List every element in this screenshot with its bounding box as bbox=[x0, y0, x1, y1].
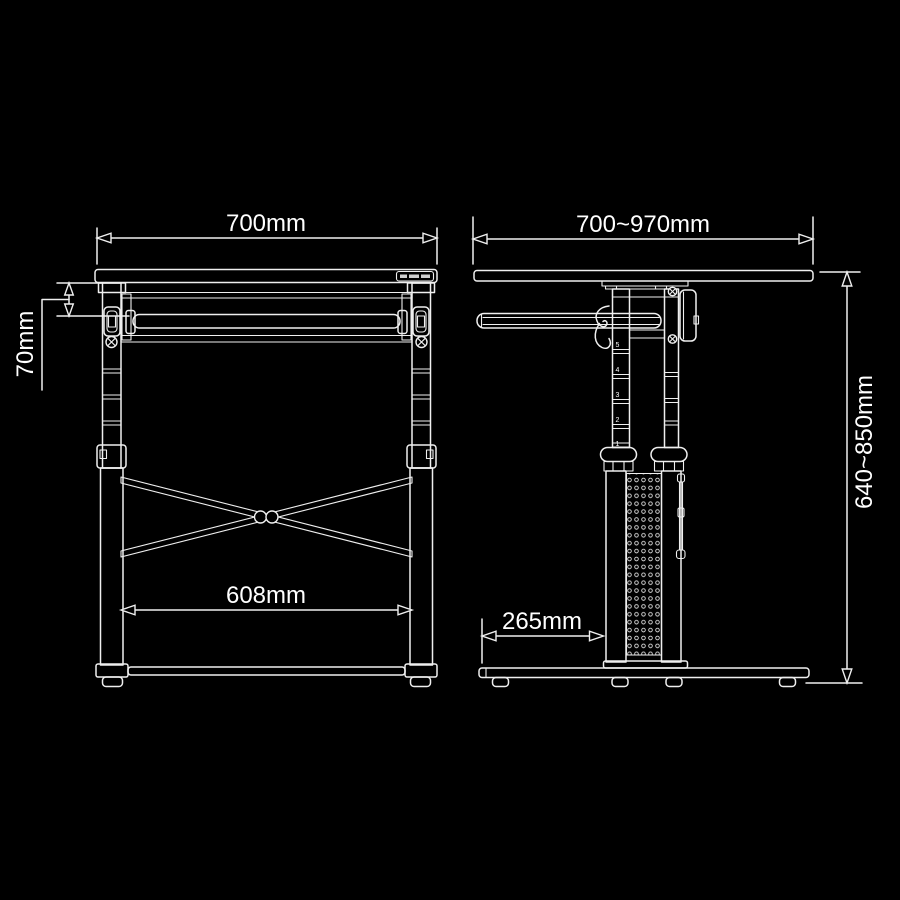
side-front-lower-tube bbox=[606, 471, 626, 662]
side-clamp-bracket bbox=[680, 290, 699, 341]
front-left-glide bbox=[103, 677, 123, 687]
scale-number: 4 bbox=[616, 367, 620, 374]
side-dim-base-depth: 265mm bbox=[482, 608, 604, 663]
side-foot-bar bbox=[479, 668, 809, 678]
arrow-left-icon bbox=[473, 234, 487, 244]
side-front-collar bbox=[601, 448, 637, 472]
screw-icon bbox=[106, 337, 117, 348]
side-rear-collar bbox=[651, 448, 687, 472]
front-tray-rod bbox=[126, 311, 407, 334]
front-dim-width: 700mm bbox=[97, 210, 437, 264]
scale-number: 5 bbox=[616, 342, 620, 349]
arrow-up-icon bbox=[65, 283, 74, 295]
front-right-leg bbox=[405, 283, 437, 687]
side-glide bbox=[493, 678, 509, 687]
scale-number: 3 bbox=[616, 392, 620, 399]
front-view: 700mm bbox=[12, 210, 437, 687]
side-base bbox=[479, 661, 809, 687]
front-upper-rail bbox=[121, 293, 412, 299]
side-glide bbox=[780, 678, 796, 687]
front-right-glide bbox=[411, 677, 431, 687]
arrow-left-icon bbox=[97, 233, 111, 243]
arrow-right-icon bbox=[799, 234, 813, 244]
front-right-foot bbox=[405, 664, 437, 677]
screw-icon bbox=[416, 337, 427, 348]
desk-dimension-drawing: 700mm bbox=[0, 0, 900, 900]
arrow-right-icon bbox=[423, 233, 437, 243]
side-desktop bbox=[474, 271, 813, 282]
front-cross-brace bbox=[121, 477, 412, 557]
front-tray-drop-label: 70mm bbox=[12, 311, 39, 378]
side-base-depth-label: 265mm bbox=[502, 608, 582, 635]
brand-badge bbox=[397, 272, 434, 282]
scale-number: 2 bbox=[616, 417, 620, 424]
side-rear-lower-tube bbox=[662, 471, 682, 662]
arrow-right-icon bbox=[590, 631, 604, 641]
side-tray-rod bbox=[477, 314, 661, 329]
side-glide bbox=[612, 678, 628, 687]
side-perforated-panel bbox=[627, 474, 662, 656]
screw-icon bbox=[668, 335, 676, 343]
front-left-foot bbox=[96, 664, 128, 677]
front-inner-span-label: 608mm bbox=[226, 582, 306, 609]
front-bottom-bar bbox=[128, 667, 405, 675]
side-dim-height: 640~850mm bbox=[806, 272, 878, 683]
brace-turnbuckle bbox=[266, 511, 278, 523]
scale-number: 1 bbox=[616, 441, 620, 448]
brace-turnbuckle bbox=[255, 511, 267, 523]
side-height-scale: 5 4 3 2 1 bbox=[616, 342, 620, 448]
side-view: 700~970mm bbox=[473, 211, 878, 687]
arrow-left-icon bbox=[482, 631, 496, 641]
arrow-down-icon bbox=[65, 304, 74, 316]
diagram-canvas: 700mm bbox=[0, 0, 900, 900]
front-left-leg bbox=[96, 283, 128, 687]
front-desktop bbox=[95, 270, 437, 283]
side-height-label: 640~850mm bbox=[851, 375, 878, 509]
front-dim-inner-span: 608mm bbox=[121, 582, 412, 615]
arrow-up-icon bbox=[842, 272, 852, 286]
bag-hook-icon bbox=[595, 306, 610, 348]
front-lower-rail bbox=[121, 336, 412, 343]
side-dim-depth: 700~970mm bbox=[473, 211, 813, 264]
screw-icon bbox=[668, 287, 676, 295]
front-width-label: 700mm bbox=[226, 210, 306, 237]
arrow-down-icon bbox=[842, 669, 852, 683]
side-depth-label: 700~970mm bbox=[576, 211, 710, 238]
side-glide bbox=[666, 678, 682, 687]
side-rear-post bbox=[665, 289, 679, 448]
